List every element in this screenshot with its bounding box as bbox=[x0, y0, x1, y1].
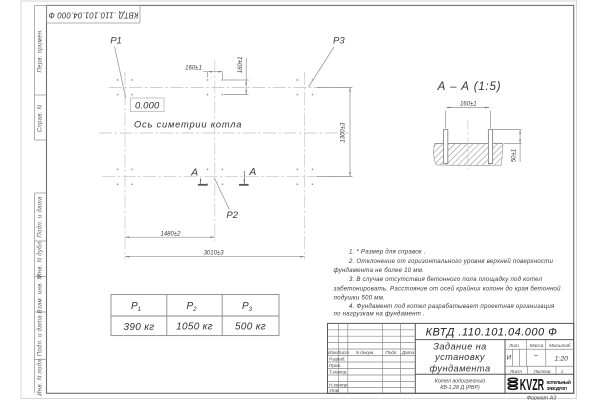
svg-text:КВ-1,28 Д (РВР): КВ-1,28 Д (РВР) bbox=[440, 385, 480, 391]
svg-text:Подп. и дата: Подп. и дата bbox=[38, 196, 44, 238]
svg-text:Р2: Р2 bbox=[226, 210, 238, 221]
svg-text:–: – bbox=[533, 353, 538, 360]
svg-text:установку: установку bbox=[434, 352, 486, 362]
svg-text:1:20: 1:20 bbox=[555, 355, 568, 362]
svg-text:Справ. N: Справ. N bbox=[38, 104, 44, 132]
svg-text:4. Фундамент под котел раз: 4. Фундамент под котел разрабатывает про… bbox=[349, 303, 555, 310]
svg-text:КВТД .110.101.04.000 Ф: КВТД .110.101.04.000 Ф bbox=[426, 326, 558, 338]
svg-text:Лист: Лист bbox=[336, 350, 349, 355]
svg-text:Т.контр.: Т.контр. bbox=[329, 370, 348, 375]
svg-text:1: 1 bbox=[561, 369, 564, 374]
svg-text:фундамента не более 10 мм.: фундамента не более 10 мм. bbox=[334, 267, 425, 274]
svg-text:160±1: 160±1 bbox=[238, 57, 244, 74]
svg-text:Р1: Р1 bbox=[110, 35, 122, 46]
svg-text:КОТЕЛЬНЫЙ: КОТЕЛЬНЫЙ bbox=[547, 378, 572, 385]
svg-text:2. Отклонение от горизонтал: 2. Отклонение от горизонтального уровня … bbox=[348, 258, 553, 265]
svg-text:500 кг: 500 кг bbox=[235, 322, 266, 333]
svg-text:160±1: 160±1 bbox=[460, 102, 477, 108]
svg-text:А: А bbox=[190, 166, 198, 178]
svg-text:Взам. инв. N: Взам. инв. N bbox=[38, 275, 44, 314]
svg-text:Масса: Масса bbox=[530, 343, 544, 348]
svg-text:0.000: 0.000 bbox=[135, 99, 160, 110]
svg-text:Н.контр.: Н.контр. bbox=[329, 382, 348, 387]
svg-text:КВТД .110.101.04.000 Ф: КВТД .110.101.04.000 Ф bbox=[48, 11, 138, 20]
svg-text:Р3: Р3 bbox=[333, 36, 345, 47]
svg-text:Инв. N подл.: Инв. N подл. bbox=[38, 357, 44, 396]
svg-text:1480±2: 1480±2 bbox=[161, 231, 182, 237]
svg-text:160±1: 160±1 bbox=[185, 66, 202, 72]
svg-text:ЗАВОД РЭП: ЗАВОД РЭП bbox=[547, 386, 568, 391]
svg-text:Подп.: Подп. bbox=[385, 350, 397, 355]
svg-text:А – А (1:5): А – А (1:5) bbox=[437, 81, 502, 93]
svg-text:1. * Размер для справок .: 1. * Размер для справок . bbox=[349, 248, 426, 255]
svg-text:Лит.: Лит. bbox=[508, 343, 520, 348]
svg-text:А: А bbox=[248, 166, 256, 178]
svg-text:Инв. N дубл.: Инв. N дубл. bbox=[38, 240, 44, 278]
svg-text:Листов: Листов bbox=[533, 369, 551, 374]
svg-text:Ось симетрии котла: Ось симетрии котла bbox=[134, 119, 242, 129]
svg-text:KVZR: KVZR bbox=[520, 377, 545, 394]
svg-text:390 кг: 390 кг bbox=[124, 322, 155, 333]
svg-text:Задание на: Задание на bbox=[433, 342, 487, 352]
svg-text:Дата: Дата bbox=[401, 350, 415, 355]
svg-text:3. В случае отсутствия бет: 3. В случае отсутствия бетонного пола пл… bbox=[349, 276, 543, 283]
svg-text:Разраб.: Разраб. bbox=[329, 357, 346, 362]
svg-text:3010±3: 3010±3 bbox=[204, 251, 225, 257]
svg-text:Перв. примен.: Перв. примен. bbox=[38, 29, 44, 73]
svg-text:Лист: Лист bbox=[509, 369, 522, 374]
svg-text:Котел водогрейный: Котел водогрейный bbox=[435, 377, 485, 384]
svg-text:И: И bbox=[507, 355, 512, 362]
svg-text:Формат А3: Формат А3 bbox=[527, 395, 557, 400]
svg-text:Подп. и дата: Подп. и дата bbox=[38, 315, 44, 357]
svg-text:50±1: 50±1 bbox=[511, 149, 517, 162]
svg-text:Пров.: Пров. bbox=[329, 363, 341, 368]
svg-text:Утв.: Утв. bbox=[329, 388, 339, 393]
svg-text:подушки 500 мм.: подушки 500 мм. bbox=[334, 295, 385, 302]
svg-text:фундамента: фундамента bbox=[429, 363, 490, 373]
svg-text:Масштаб: Масштаб bbox=[549, 343, 571, 348]
svg-text:забетонировать. Расстояние о: забетонировать. Расстояние от осей крайн… bbox=[333, 285, 562, 292]
svg-text:1050 кг: 1050 кг bbox=[176, 322, 213, 333]
svg-text:N докум.: N докум. bbox=[356, 350, 375, 355]
svg-text:1300±3: 1300±3 bbox=[341, 122, 347, 143]
svg-text:по нагрузкам на фундамент .: по нагрузкам на фундамент . bbox=[334, 310, 425, 317]
